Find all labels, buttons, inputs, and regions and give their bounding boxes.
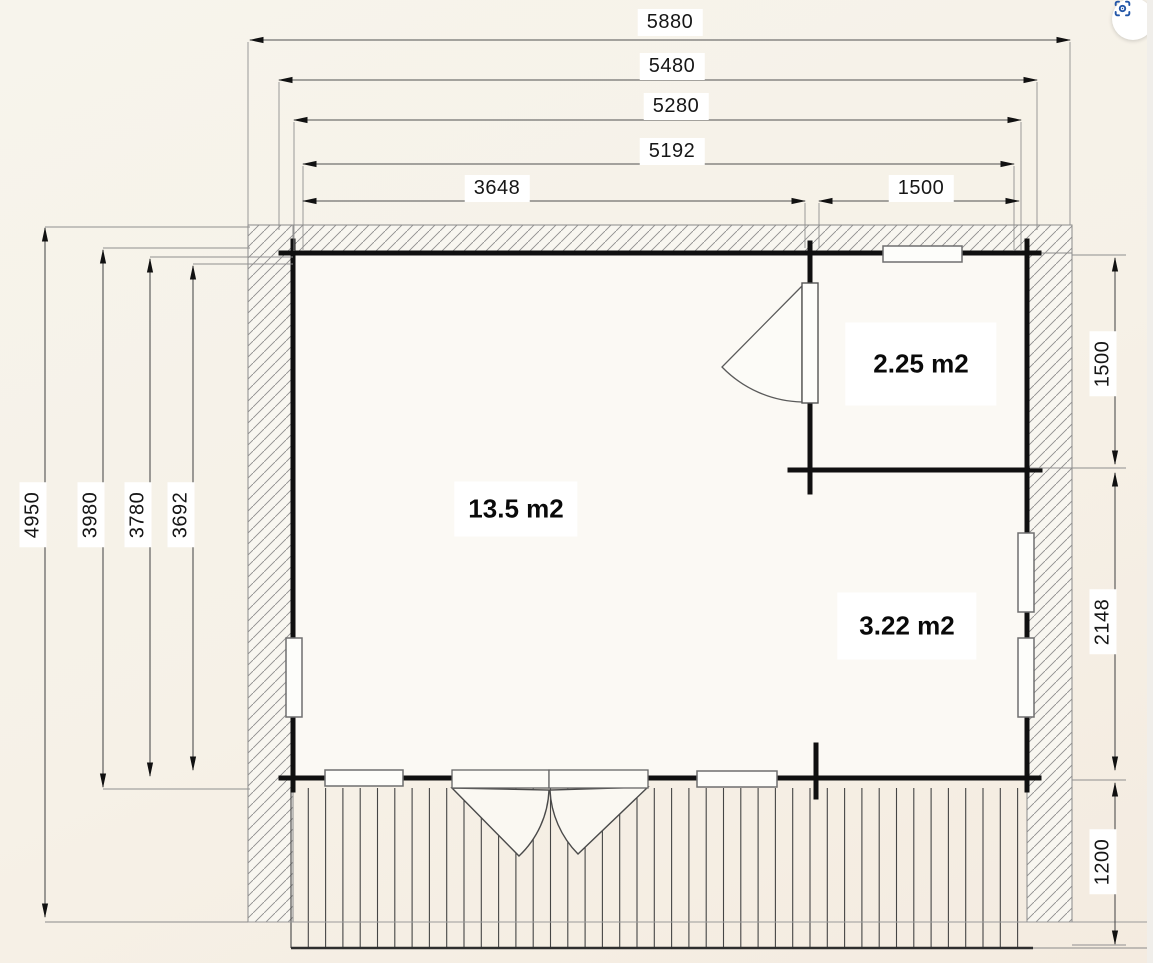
window-left-wall bbox=[286, 638, 302, 717]
double-door-swing-right bbox=[550, 787, 648, 854]
floorplan-canvas: 5880 5480 5280 5192 3648 1500 4950 3980 … bbox=[0, 0, 1153, 963]
dim-label-3980: 3980 bbox=[78, 483, 105, 548]
dim-label-5192: 5192 bbox=[640, 138, 705, 165]
window-bottom-right bbox=[697, 771, 777, 787]
double-door-swing-left bbox=[452, 788, 549, 856]
room-area-bottom-right: 3.22 m2 bbox=[837, 593, 976, 660]
dim-label-1200: 1200 bbox=[1090, 830, 1117, 895]
building-interior bbox=[250, 227, 1070, 780]
door-leaf bbox=[802, 283, 818, 403]
room-area-main: 13.5 m2 bbox=[454, 482, 577, 537]
dim-label-5880: 5880 bbox=[638, 9, 703, 36]
dim-label-4950: 4950 bbox=[20, 483, 47, 548]
dim-label-5280: 5280 bbox=[644, 93, 709, 120]
dim-label-3692: 3692 bbox=[168, 483, 195, 548]
dim-label-2148: 2148 bbox=[1090, 590, 1117, 655]
dim-label-3648: 3648 bbox=[465, 175, 530, 202]
window-right-wall-upper bbox=[1018, 533, 1034, 612]
room-area-top-right: 2.25 m2 bbox=[845, 323, 996, 406]
left-wall-hatch bbox=[248, 225, 293, 922]
double-door-leaf-left bbox=[452, 770, 549, 788]
window-top-wall bbox=[883, 246, 962, 262]
window-right-wall-lower bbox=[1018, 638, 1034, 717]
right-edge-strip bbox=[1147, 0, 1153, 963]
dim-label-3780: 3780 bbox=[125, 483, 152, 548]
dim-label-1500-right: 1500 bbox=[1090, 332, 1117, 397]
window-bottom-left bbox=[325, 770, 403, 786]
double-door-leaf-right bbox=[549, 770, 648, 788]
deck-edges bbox=[45, 922, 1150, 948]
dim-label-5480: 5480 bbox=[640, 53, 705, 80]
visual-search-icon bbox=[1112, 0, 1133, 19]
dim-label-1500-top: 1500 bbox=[889, 175, 954, 202]
deck-planks bbox=[291, 788, 1018, 948]
